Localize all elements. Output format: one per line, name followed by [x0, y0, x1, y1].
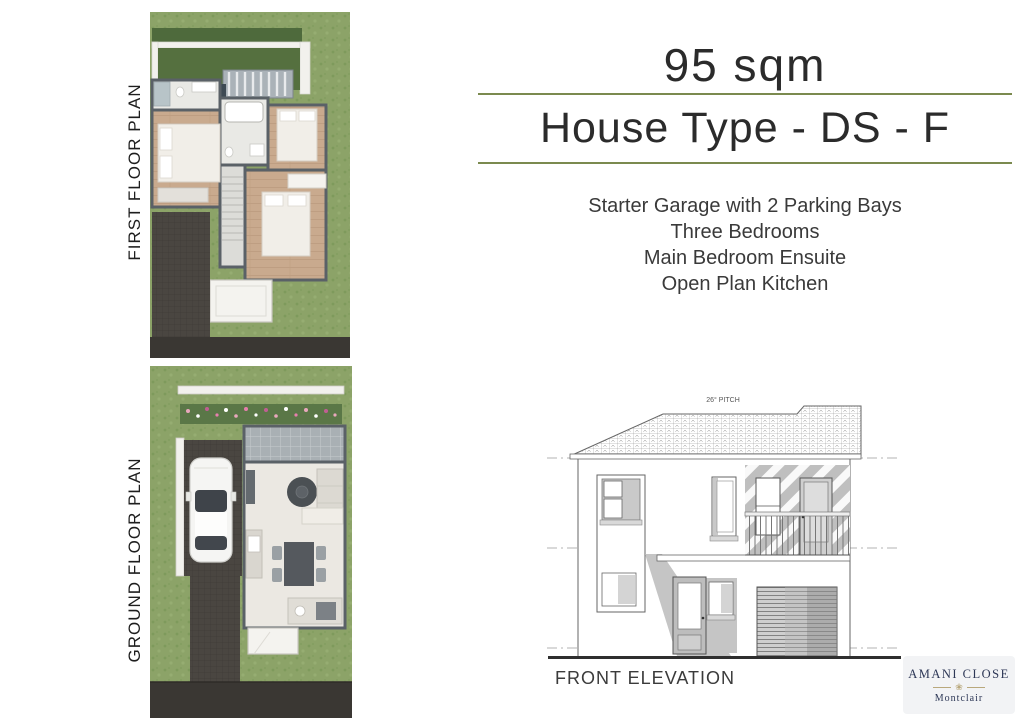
logo-line-right [967, 687, 985, 688]
stair-window-column [597, 475, 645, 612]
car-rear-window [195, 536, 227, 550]
car-mirror-right [231, 492, 236, 501]
bed-2 [277, 109, 317, 161]
ground-floor-plan-label: GROUND FLOOR PLAN [125, 458, 145, 663]
garage-door [757, 587, 837, 657]
tiled-roof [570, 406, 861, 459]
driveway [152, 212, 210, 337]
car-roof [195, 512, 227, 536]
balcony-balusters [745, 516, 850, 555]
balcony-rail-top [745, 512, 850, 516]
entrance-porch [248, 628, 298, 654]
first-floor-plan-image [150, 12, 350, 358]
feature-item: Open Plan Kitchen [478, 271, 1012, 297]
balcony [745, 465, 850, 555]
bed-main [158, 124, 220, 182]
driveway [190, 576, 240, 682]
green-divider-top [478, 93, 1012, 95]
roof-pitch-annotation: 26° PITCH [706, 396, 740, 404]
development-logo: AMANI CLOSE ❀ Montclair [903, 656, 1015, 714]
feature-list: Starter Garage with 2 Parking Bays Three… [478, 193, 1012, 297]
feature-item: Three Bedrooms [478, 219, 1012, 245]
car [186, 458, 236, 562]
tv-unit [246, 470, 255, 504]
area-size-title: 95 sqm [478, 38, 1012, 92]
carport-wall [176, 438, 184, 576]
boundary-wall [178, 386, 344, 394]
brochure-page: FIRST FLOOR PLAN [0, 0, 1024, 724]
front-elevation-drawing: 26° PITCH [545, 388, 1015, 673]
front-elevation-label: FRONT ELEVATION [555, 668, 735, 689]
feature-item: Main Bedroom Ensuite [478, 245, 1012, 271]
daybed [302, 508, 343, 524]
road [150, 682, 352, 718]
flower-bed [180, 404, 342, 424]
bed-3 [262, 192, 310, 256]
ground-floor-plan-render [150, 366, 352, 718]
lotus-flower-icon: ❀ [955, 683, 963, 692]
logo-divider: ❀ [933, 683, 985, 692]
road [150, 337, 350, 358]
stairs [220, 165, 245, 267]
kitchen-counter-bottom [288, 598, 342, 624]
feature-item: Starter Garage with 2 Parking Bays [478, 193, 1012, 219]
logo-subtitle: Montclair [935, 693, 983, 704]
first-floor-plan-render [150, 12, 350, 358]
green-divider-bottom [478, 162, 1012, 164]
kitchen-counter-left [246, 530, 262, 578]
front-door [673, 577, 706, 654]
logo-line-left [933, 687, 951, 688]
closet [288, 174, 326, 188]
porch-roof-line [657, 555, 850, 561]
upper-window [710, 477, 738, 541]
ground-floor-plan-image [150, 366, 352, 718]
car-mirror-left [186, 492, 191, 501]
balcony-slats [216, 70, 293, 98]
logo-name: AMANI CLOSE [908, 667, 1010, 682]
first-floor-plan-label: FIRST FLOOR PLAN [125, 83, 145, 260]
car-windshield [195, 490, 227, 512]
hedge-strip [152, 28, 302, 42]
side-window [707, 582, 735, 620]
wardrobe [158, 188, 208, 202]
rear-patio [244, 426, 345, 462]
house-type-title: House Type - DS - F [478, 104, 1012, 153]
